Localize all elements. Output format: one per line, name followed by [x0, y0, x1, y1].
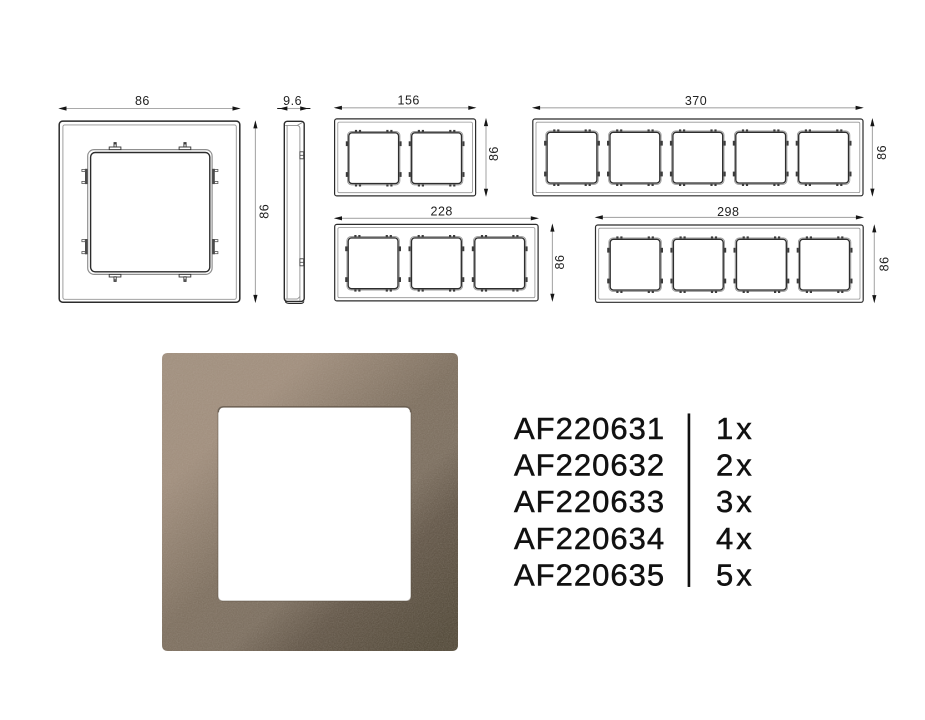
svg-text:5x: 5x	[716, 558, 755, 593]
svg-text:AF220635: AF220635	[514, 558, 665, 593]
svg-text:AF220632: AF220632	[514, 448, 665, 483]
svg-text:4x: 4x	[716, 521, 755, 556]
svg-text:AF220633: AF220633	[514, 484, 665, 519]
svg-text:298: 298	[717, 205, 739, 219]
svg-text:86: 86	[487, 146, 501, 161]
svg-text:AF220634: AF220634	[514, 521, 665, 556]
svg-text:2x: 2x	[716, 448, 755, 483]
svg-text:86: 86	[875, 145, 889, 160]
svg-text:86: 86	[877, 256, 891, 271]
svg-text:370: 370	[685, 94, 707, 108]
svg-text:156: 156	[398, 94, 420, 108]
svg-text:86: 86	[553, 255, 567, 270]
svg-text:86: 86	[135, 94, 150, 108]
svg-text:86: 86	[258, 204, 272, 219]
svg-text:9.6: 9.6	[283, 94, 302, 108]
svg-text:AF220631: AF220631	[514, 411, 665, 446]
svg-text:1x: 1x	[716, 411, 755, 446]
svg-text:3x: 3x	[716, 484, 755, 519]
svg-text:228: 228	[431, 205, 453, 219]
